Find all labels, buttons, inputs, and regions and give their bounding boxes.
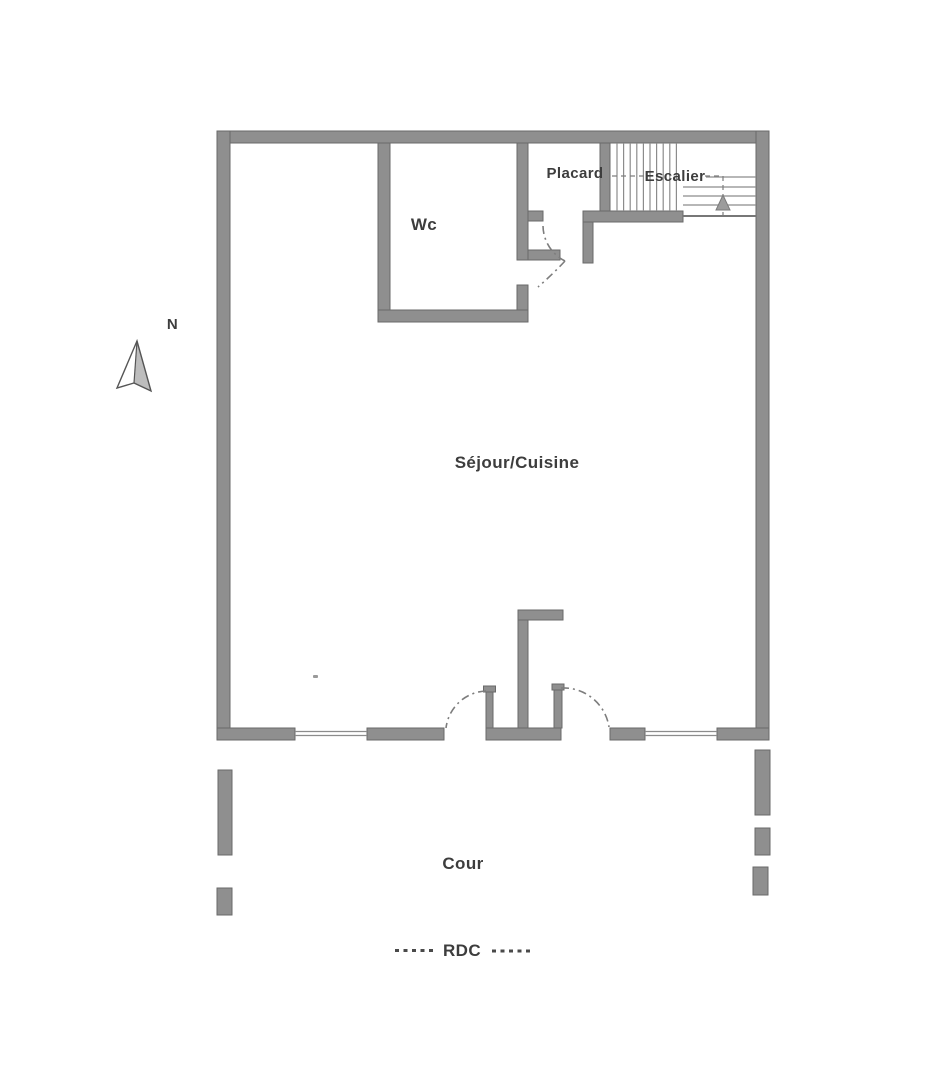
partition-vertical — [518, 610, 528, 728]
label-sejour-cuisine: Séjour/Cuisine — [455, 453, 580, 472]
scan-speck — [313, 675, 318, 678]
outer-walls — [217, 131, 769, 740]
window-bottom-right — [645, 732, 717, 736]
wall-bottom-seg-4 — [610, 728, 645, 740]
cour-wall-left-2 — [217, 888, 232, 915]
wall-bottom-seg-5 — [717, 728, 769, 740]
wall-bottom-seg-2 — [367, 728, 444, 740]
north-compass: N — [117, 316, 178, 391]
wall-bottom-seg-1 — [217, 728, 295, 740]
wall-outer-left — [217, 131, 230, 740]
window-bottom-left — [295, 732, 367, 736]
wc-wall-bottom — [378, 310, 528, 322]
label-cour: Cour — [442, 854, 483, 873]
door-swing-right — [561, 688, 609, 727]
stair-up-arrow-icon — [716, 195, 730, 210]
cour-walls — [217, 750, 770, 915]
cour-wall-right-1 — [755, 750, 770, 815]
label-floor-rdc: RDC — [443, 941, 481, 960]
placard-door-jamb-left — [528, 211, 543, 221]
door-leaf-left — [486, 687, 493, 728]
partition-top-stub — [518, 610, 563, 620]
floor-plan-rdc: N Wc Placard Escalier Séjour/Cuisine Cou… — [0, 0, 943, 1080]
label-placard: Placard — [547, 165, 604, 182]
wall-outer-right — [756, 131, 769, 740]
room-wc — [378, 143, 560, 322]
door-leaf-right — [554, 686, 562, 728]
label-escalier: Escalier — [645, 168, 706, 185]
north-label: N — [167, 316, 178, 333]
cour-wall-left-1 — [218, 770, 232, 855]
cour-wall-right-2 — [755, 828, 770, 855]
floor-caption: RDC — [395, 941, 532, 960]
wc-wall-left — [378, 143, 390, 322]
wall-outer-top — [217, 131, 769, 143]
room-placard — [583, 143, 683, 263]
wc-wall-right-stub — [517, 285, 528, 310]
floor-plan-page: N Wc Placard Escalier Séjour/Cuisine Cou… — [0, 0, 943, 1080]
label-wc: Wc — [411, 215, 437, 234]
wc-placard-divider — [517, 143, 528, 260]
placard-stairs-bottom-wall — [583, 211, 683, 222]
north-arrow-icon — [117, 341, 151, 391]
wall-bottom-seg-3 — [486, 728, 561, 740]
door-leaf-right-cap — [552, 684, 564, 690]
cour-wall-right-3 — [753, 867, 768, 895]
wc-door-arc — [538, 261, 565, 287]
door-swing-left — [446, 691, 486, 728]
